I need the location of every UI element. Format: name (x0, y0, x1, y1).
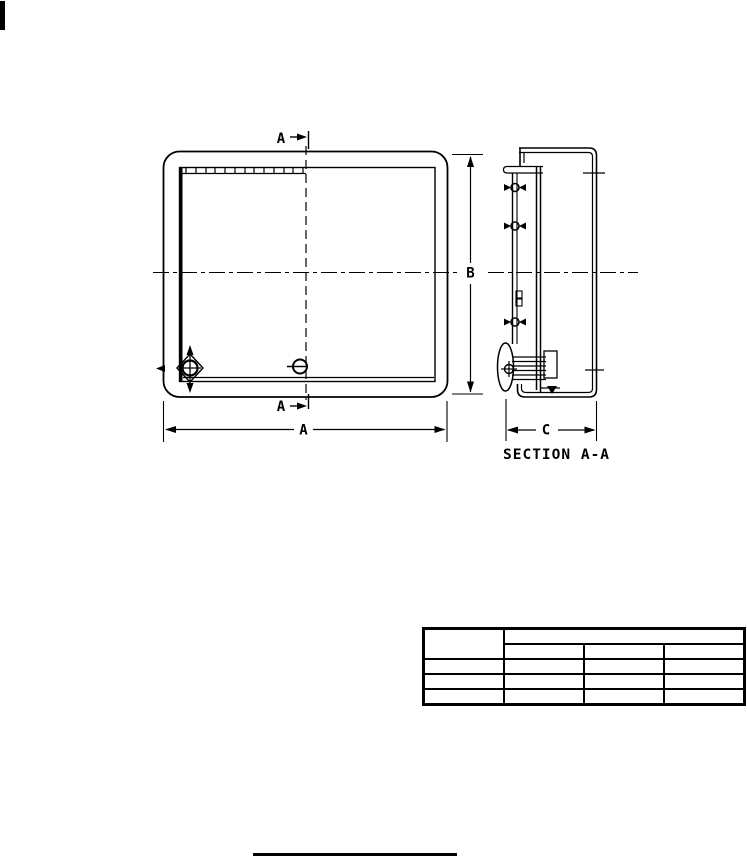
table-cell (664, 674, 744, 689)
dimension-depth-C: C (506, 399, 597, 441)
rivet-symbol-icon (504, 222, 526, 230)
table-cell (664, 659, 744, 674)
table-row (424, 674, 745, 689)
screw-symbol-icon (287, 360, 307, 374)
arrow-up-icon (467, 156, 474, 167)
section-caption: SECTION A-A (503, 447, 610, 463)
cut-label-bottom: A (277, 399, 286, 415)
section-view (488, 148, 638, 397)
table-cell (504, 659, 584, 674)
arrow-down-icon (187, 383, 194, 393)
arrow-right-icon (297, 134, 307, 141)
table-subheader-cell (504, 644, 584, 659)
dimension-width-A: A (164, 401, 448, 442)
table-cell (584, 659, 664, 674)
table-cell (424, 659, 504, 674)
table-row (424, 659, 745, 674)
table-cell (424, 674, 504, 689)
dim-label-B: B (466, 266, 474, 282)
dim-label-C: C (542, 423, 550, 439)
table-subheader-cell (664, 644, 744, 659)
arrow-left-icon (165, 426, 176, 433)
engineering-drawing: A A B A (0, 0, 747, 859)
table-cell (584, 674, 664, 689)
table-corner-cell (424, 629, 504, 660)
spec-table (422, 627, 746, 706)
dimension-height-B: B (452, 155, 483, 395)
arrow-right-icon (585, 427, 596, 434)
arrow-right-icon (297, 403, 307, 410)
hinge-strip-ticks (186, 168, 303, 174)
table-header-row (424, 629, 745, 645)
table-subheader-cell (584, 644, 664, 659)
rivet-symbol-icon (504, 184, 526, 192)
table-row (424, 689, 745, 705)
table-cell (504, 689, 584, 705)
arrow-down-icon (467, 382, 474, 393)
latch-bracket (544, 351, 557, 378)
dim-label-A: A (299, 423, 308, 439)
footer-rule (253, 853, 457, 856)
table-cell (664, 689, 744, 705)
table-group-header-cell (504, 629, 745, 645)
cutting-plane-marker-top: A (277, 131, 309, 149)
table-cell (424, 689, 504, 705)
table-cell (584, 689, 664, 705)
panel-inner-outline (180, 168, 436, 382)
rivet-symbol-icon (504, 318, 526, 326)
table-cell (504, 674, 584, 689)
cut-label-top: A (277, 131, 286, 147)
arrow-left-icon (507, 427, 518, 434)
scanned-drawing-page: A A B A (0, 0, 747, 859)
latch-assembly (498, 343, 561, 394)
arrow-right-icon (435, 426, 446, 433)
arrow-left-icon (156, 365, 165, 372)
